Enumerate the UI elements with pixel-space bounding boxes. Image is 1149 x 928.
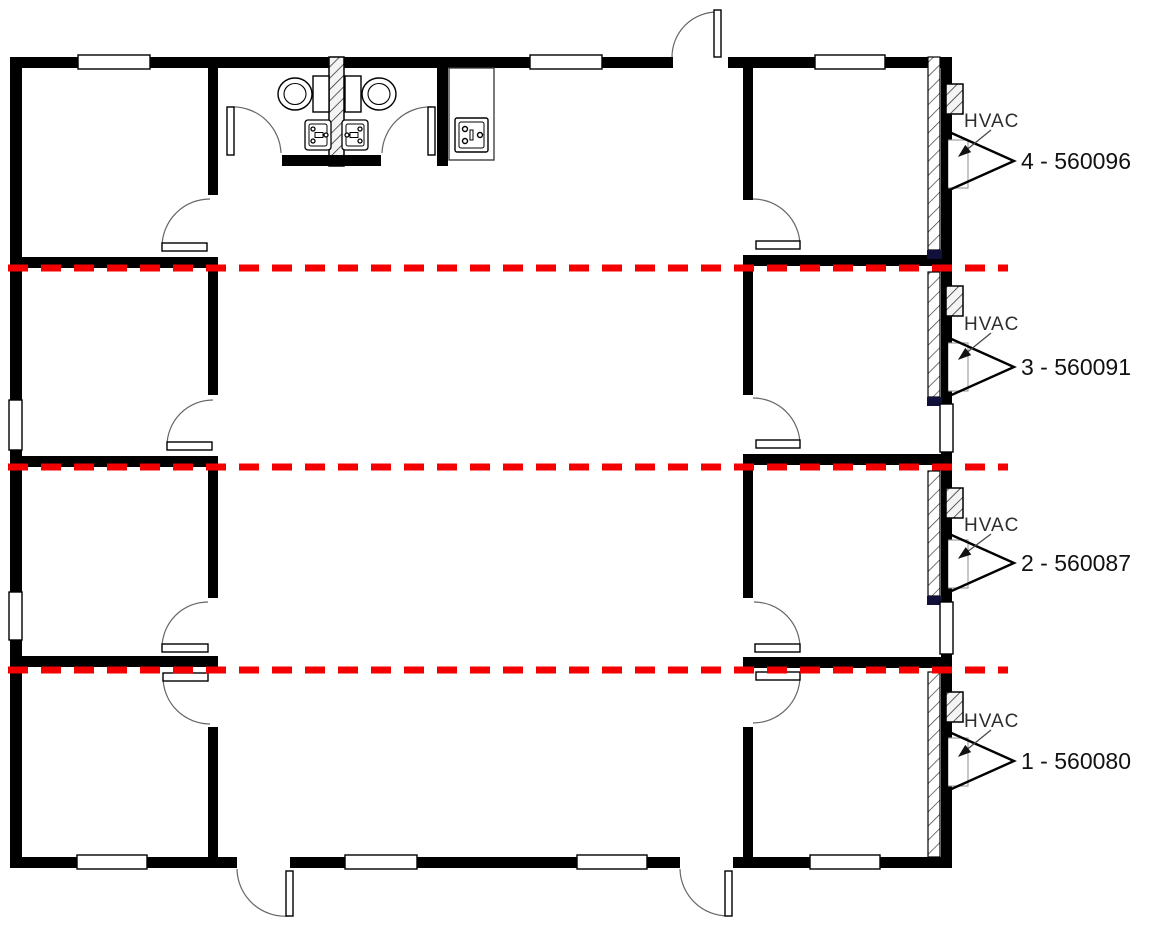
door-leaf bbox=[428, 107, 435, 155]
window-top-1 bbox=[78, 55, 150, 69]
window-bottom-3 bbox=[577, 855, 647, 869]
hvac-unit bbox=[946, 286, 963, 316]
door-leaf bbox=[714, 10, 721, 57]
hvac-unit bbox=[946, 692, 963, 722]
kitchenette-sink-divider bbox=[470, 130, 473, 140]
door-leaf bbox=[286, 871, 293, 916]
inner-wall-left-m1 bbox=[208, 727, 218, 861]
inner-wall-right-m1 bbox=[743, 727, 753, 861]
inner-wall-right-m3 bbox=[743, 255, 753, 395]
sink-left-knob-2 bbox=[311, 139, 315, 143]
door-leaf bbox=[162, 644, 208, 652]
module-serial-label: 1 - 560080 bbox=[1021, 748, 1131, 774]
sink-right-faucet bbox=[350, 133, 358, 138]
sink-left-faucet bbox=[315, 133, 323, 138]
window-right-2 bbox=[940, 602, 953, 654]
module-serial-label: 4 - 560096 bbox=[1021, 148, 1131, 174]
window-left-2 bbox=[9, 592, 22, 640]
sink-right-drain bbox=[345, 133, 349, 137]
restroom-bottom-wall bbox=[282, 155, 381, 166]
hvac-label: HVAC bbox=[964, 711, 1019, 732]
hvac-unit bbox=[946, 84, 963, 114]
floor-plan-page: HVAC 4 - 560096 HVAC 3 - 560091 HVAC 2 -… bbox=[0, 0, 1149, 928]
door-leaf bbox=[227, 107, 234, 155]
hvac-label: HVAC bbox=[964, 111, 1019, 132]
module-wall-c-left bbox=[10, 656, 218, 667]
window-top-2 bbox=[530, 55, 602, 69]
door-leaf bbox=[756, 440, 800, 448]
kitchenette-area bbox=[449, 68, 494, 160]
window-top-3 bbox=[815, 55, 885, 69]
inner-wall-left-m3 bbox=[208, 257, 218, 395]
module-serial-label: 2 - 560087 bbox=[1021, 550, 1131, 576]
window-right-1 bbox=[940, 404, 953, 452]
chase-strip-module-1 bbox=[928, 672, 940, 857]
kitchenette-sink-knob-1 bbox=[463, 127, 468, 132]
sink-left-knob-1 bbox=[311, 127, 315, 131]
door-leaf bbox=[163, 673, 208, 681]
sink-right-knob-2 bbox=[358, 139, 362, 143]
window-left-1 bbox=[9, 400, 22, 450]
door-leaf bbox=[755, 644, 800, 652]
sink-right bbox=[342, 120, 368, 150]
module-wall-b-right bbox=[743, 454, 952, 465]
door-leaf bbox=[162, 243, 207, 251]
module-serial-label: 3 - 560091 bbox=[1021, 354, 1131, 380]
toilet-left bbox=[278, 76, 329, 112]
toilet-right-bowl-inner bbox=[368, 84, 390, 105]
module-wall-c-right bbox=[743, 657, 952, 668]
door-leaf bbox=[167, 442, 212, 450]
chase-cap-module-4 bbox=[927, 250, 942, 259]
interior-walls-right-column bbox=[743, 57, 753, 861]
module-wall-a-right bbox=[743, 255, 952, 266]
window-bottom-1 bbox=[77, 855, 147, 869]
inner-wall-left-m4 bbox=[208, 57, 218, 195]
door-leaf bbox=[725, 871, 732, 916]
chase-strip-module-4 bbox=[928, 57, 940, 250]
hvac-label: HVAC bbox=[964, 314, 1019, 335]
inner-wall-left-m2 bbox=[208, 456, 218, 598]
sink-left-drain bbox=[324, 133, 328, 137]
kitchenette-sink bbox=[455, 118, 488, 152]
restroom-right-wall bbox=[437, 57, 448, 166]
kitchenette-sink-drain bbox=[478, 133, 483, 138]
inner-wall-right-m2 bbox=[743, 454, 753, 598]
plumbing-wall bbox=[329, 57, 344, 166]
sink-right-knob-1 bbox=[358, 127, 362, 131]
kitchenette-sink-knob-2 bbox=[463, 139, 468, 144]
toilet-left-bowl-inner bbox=[284, 84, 306, 105]
interior-walls-left-column bbox=[208, 57, 218, 861]
window-bottom-2 bbox=[345, 855, 417, 869]
hvac-label: HVAC bbox=[964, 515, 1019, 536]
window-bottom-4 bbox=[810, 855, 880, 869]
toilet-left-tank bbox=[313, 76, 329, 112]
chase-strip-module-3 bbox=[928, 272, 940, 397]
door-leaf bbox=[756, 241, 800, 249]
chase-strip-module-2 bbox=[928, 471, 940, 596]
hvac-unit bbox=[946, 488, 963, 518]
floor-plan-canvas: HVAC 4 - 560096 HVAC 3 - 560091 HVAC 2 -… bbox=[0, 0, 1149, 928]
inner-wall-right-m4 bbox=[743, 57, 753, 200]
toilet-right bbox=[345, 76, 396, 112]
sink-left bbox=[305, 120, 331, 150]
toilet-right-tank bbox=[345, 76, 361, 112]
